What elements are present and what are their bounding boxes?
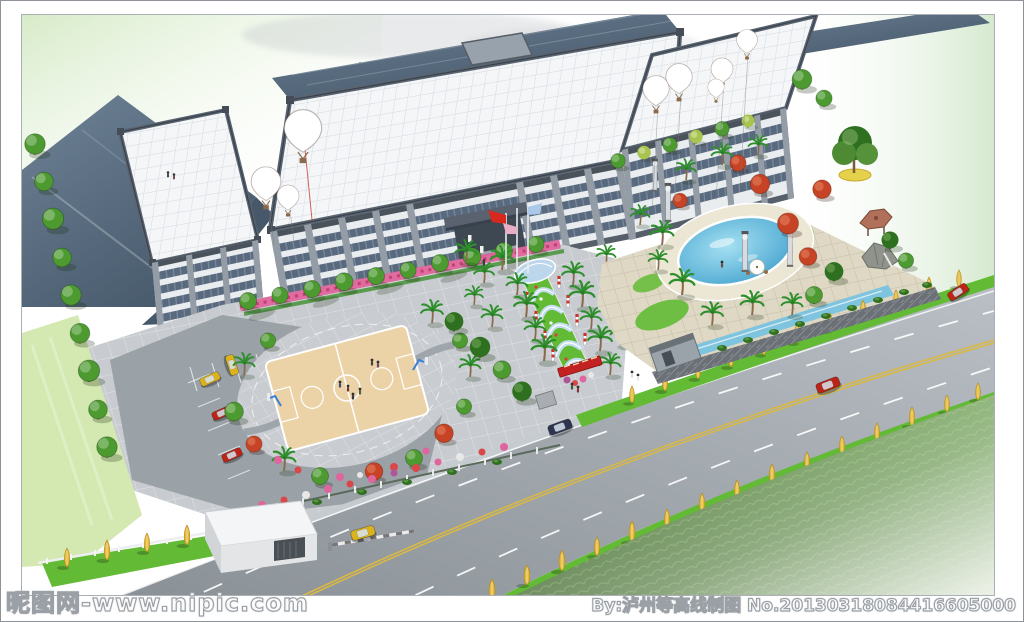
rendering-image: aerial rendering of factory office compl… [0,0,1024,622]
pool-chair [764,270,768,274]
watermark-author: By:泸州等高线制图 No.20130318084416605000 [591,591,1016,616]
watermark-nipic: 昵图网-www.nipic.com [6,583,309,618]
inner-frame: aerial rendering of factory office compl… [21,14,995,596]
statue [480,246,484,253]
scene-rendering: aerial rendering of factory office compl… [22,15,994,595]
pool-person [721,261,724,268]
